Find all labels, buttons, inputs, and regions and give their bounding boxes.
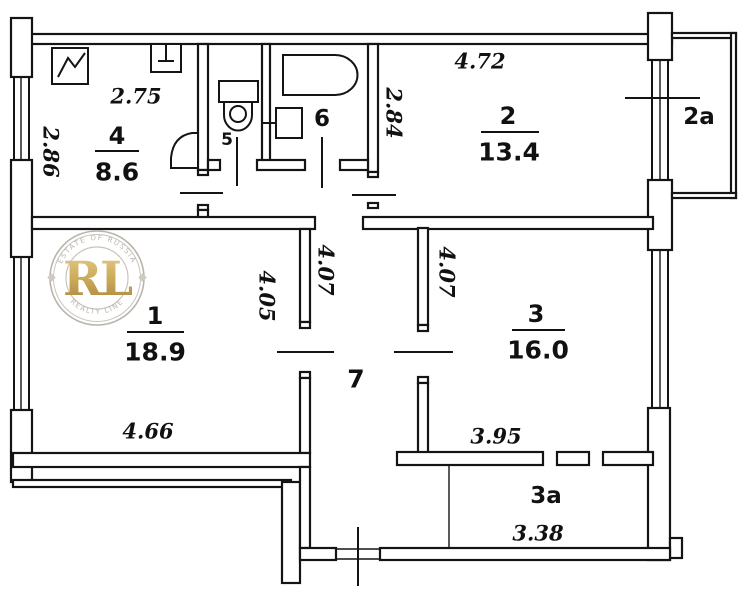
dim-room3-depth: 4.07 bbox=[435, 246, 460, 297]
room-4-number: 4 bbox=[109, 122, 126, 150]
dim-room3-width: 3.95 bbox=[470, 424, 521, 449]
floor-plan: ESTATE OF RUSSIA REALTY LINE RL 1 18.9 2… bbox=[0, 0, 742, 600]
balcony-2a-label: 2a bbox=[683, 104, 715, 130]
stove-icon bbox=[52, 48, 88, 84]
dim-room1-depth: 4.05 bbox=[255, 270, 280, 321]
logo-diamond-left bbox=[47, 273, 55, 281]
logo-initials: RL bbox=[63, 252, 133, 307]
logo-diamond-right bbox=[138, 273, 146, 281]
toilet-icon bbox=[219, 81, 258, 131]
dim-room4-width: 2.75 bbox=[110, 84, 161, 109]
door-ticks bbox=[180, 98, 700, 586]
room-1-area: 18.9 bbox=[124, 338, 186, 367]
dim-room2-depth: 2.84 bbox=[382, 87, 407, 138]
room-5-number: 5 bbox=[221, 130, 233, 150]
room-2-area: 13.4 bbox=[478, 138, 540, 167]
room-3-underline bbox=[512, 329, 565, 331]
dim-room1-width: 4.66 bbox=[122, 419, 173, 444]
room-4-area: 8.6 bbox=[95, 158, 139, 187]
windows bbox=[14, 60, 668, 410]
room3-window bbox=[652, 250, 668, 408]
room-6-number: 6 bbox=[314, 106, 330, 132]
door-leaf-icon bbox=[171, 133, 198, 168]
room-2-number: 2 bbox=[500, 102, 517, 130]
dim-corridor-depth: 4.07 bbox=[314, 244, 339, 295]
room-3-area: 16.0 bbox=[507, 336, 569, 365]
room-3-number: 3 bbox=[528, 300, 545, 328]
room-4-underline bbox=[95, 150, 139, 152]
balcony2a-window bbox=[652, 60, 668, 180]
room-2-underline bbox=[481, 131, 539, 133]
room-1-underline bbox=[127, 331, 184, 333]
dim-room2-width: 4.72 bbox=[454, 49, 505, 74]
kitchen-sink-icon bbox=[151, 44, 181, 72]
bathtub-icon bbox=[283, 55, 358, 95]
balcony-3a-label: 3a bbox=[530, 483, 562, 509]
kitchen-window bbox=[14, 77, 29, 160]
room1-window bbox=[14, 257, 29, 410]
dim-room4-depth: 2.86 bbox=[39, 126, 64, 177]
room-7-number: 7 bbox=[347, 365, 364, 394]
dim-balcony3a-width: 3.38 bbox=[512, 521, 563, 546]
agency-watermark-logo: ESTATE OF RUSSIA REALTY LINE RL bbox=[47, 231, 146, 325]
room-1-number: 1 bbox=[147, 302, 164, 330]
